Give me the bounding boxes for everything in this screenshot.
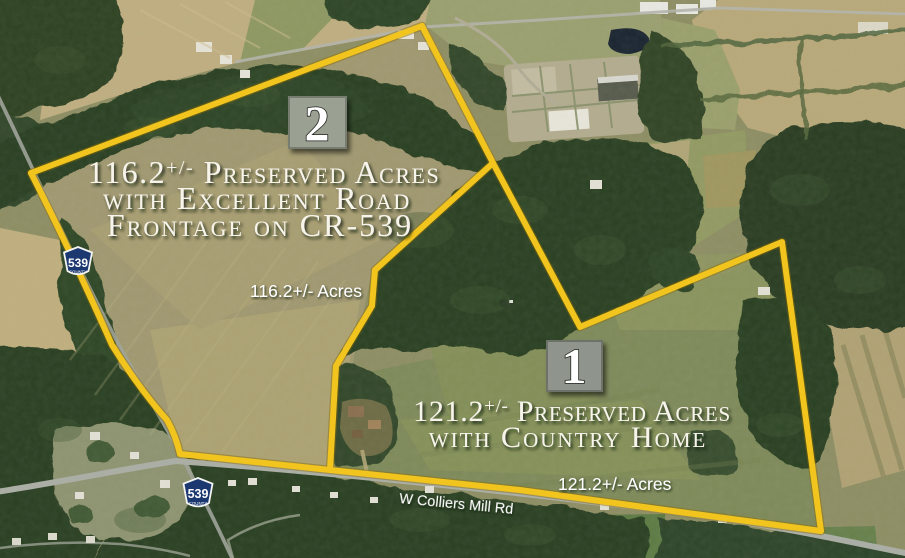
svg-text:with Country Home: with Country Home (429, 421, 708, 454)
svg-text:539: 539 (68, 256, 88, 270)
svg-text:121.2+/- Acres: 121.2+/- Acres (558, 474, 672, 494)
svg-text:116.2+/- Acres: 116.2+/- Acres (250, 281, 362, 301)
svg-text:1: 1 (562, 338, 587, 394)
svg-text:COUNTY: COUNTY (189, 501, 208, 506)
svg-text:2: 2 (305, 95, 330, 151)
svg-text:COUNTY: COUNTY (69, 270, 87, 275)
svg-text:Frontage on CR-539: Frontage on CR-539 (107, 207, 413, 243)
svg-text:539: 539 (188, 487, 209, 501)
